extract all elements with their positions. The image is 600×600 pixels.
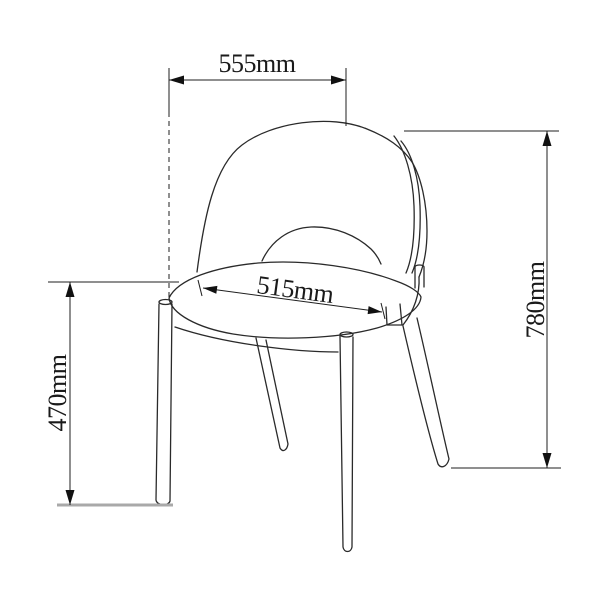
tick-seat-width-left bbox=[198, 280, 202, 296]
dim-label-seat-height: 470mm bbox=[43, 354, 72, 431]
arrowhead-height-top bbox=[543, 131, 552, 146]
tick-seat-width-right bbox=[381, 303, 385, 319]
dim-label-overall-width: 555mm bbox=[219, 49, 296, 78]
arrowhead-width-left bbox=[169, 76, 184, 85]
dimension-overall-height: 780mm bbox=[404, 131, 561, 468]
chair-backrest-cutout bbox=[262, 227, 381, 264]
chair-back-right-leg bbox=[403, 265, 449, 467]
arrowhead-height-bottom bbox=[543, 453, 552, 468]
dim-label-seat-width: 515mm bbox=[255, 270, 335, 309]
arrowhead-seat-width-left bbox=[203, 286, 217, 294]
drawing-canvas: 555mm 515mm 780mm 470mm bbox=[0, 0, 600, 600]
arrowhead-seat-height-bottom bbox=[66, 490, 75, 505]
dim-label-overall-height: 780mm bbox=[521, 261, 550, 338]
chair-backrest-outline bbox=[197, 121, 427, 277]
arrowhead-width-right bbox=[331, 76, 346, 85]
chair-front-right-leg bbox=[340, 332, 353, 552]
dimension-seat-width: 515mm bbox=[198, 270, 385, 319]
chair-back-left-leg bbox=[256, 338, 288, 451]
chair-front-left-leg bbox=[156, 300, 172, 505]
arrowhead-seat-height-top bbox=[66, 282, 75, 297]
dimension-overall-width: 555mm bbox=[169, 49, 346, 299]
arrowhead-seat-width-right bbox=[368, 306, 382, 314]
chair-backrest-contour-2 bbox=[394, 136, 414, 273]
chair-line-art bbox=[156, 121, 449, 551]
chair-dimension-drawing: 555mm 515mm 780mm 470mm bbox=[0, 0, 600, 600]
